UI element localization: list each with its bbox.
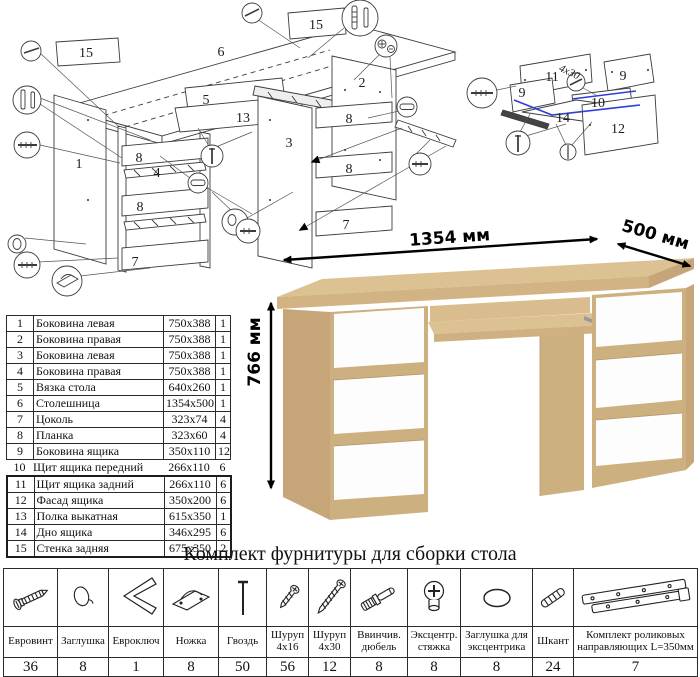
hardware-item-label: Евровинт <box>4 627 58 658</box>
nail-icon <box>223 570 263 626</box>
height-dimension-label: 766 мм <box>245 317 265 386</box>
hardware-label-row: Евровинт Заглушка Евроключ Ножка Гвоздь … <box>4 627 698 658</box>
drawer-slide-icon <box>577 570 695 626</box>
table-row: 9Боковина ящика350x11012 <box>7 444 231 460</box>
hardware-item-label: Заглушка для эксцентрика <box>461 627 533 658</box>
hardware-item-label: Шуруп 4x16 <box>267 627 309 658</box>
table-row: 4Боковина правая750x3881 <box>7 364 231 380</box>
hardware-item-qty: 8 <box>408 658 461 677</box>
desk-render <box>277 258 694 520</box>
part-label: 15 <box>79 46 93 61</box>
table-row: 8Планка323x604 <box>7 428 231 444</box>
hardware-qty-row: 36 8 1 8 50 56 12 8 8 8 24 7 <box>4 658 698 677</box>
cam-cap-icon <box>467 570 527 626</box>
table-row: 12Фасад ящика350x2006 <box>7 493 231 509</box>
table-row: 14Дно ящика346x2956 <box>7 525 231 541</box>
hardware-item-qty: 8 <box>351 658 408 677</box>
hardware-item-label: Эксцентр. стяжка <box>408 627 461 658</box>
hardware-item-qty: 24 <box>533 658 574 677</box>
hardware-item-qty: 8 <box>461 658 533 677</box>
part-label: 9 <box>620 69 627 84</box>
foot-icon <box>167 570 215 626</box>
table-row: 3Боковина левая750x3881 <box>7 348 231 364</box>
part-label: 6 <box>218 45 225 60</box>
table-row: 5Вязка стола640x2601 <box>7 380 231 396</box>
hardware-item-label: Ножка <box>164 627 219 658</box>
part-label: 15 <box>309 18 323 33</box>
part-label: 4 <box>154 166 161 181</box>
hardware-item-qty: 1 <box>109 658 164 677</box>
part-label: 8 <box>137 200 144 215</box>
hardware-item-label: Шкант <box>533 627 574 658</box>
part-label: 10 <box>591 96 605 111</box>
screw-short-icon <box>268 570 308 626</box>
hardware-item-qty: 8 <box>164 658 219 677</box>
parts-table: 1Боковина левая750x3881 2Боковина правая… <box>6 315 232 558</box>
hardware-item-qty: 8 <box>58 658 109 677</box>
part-label: 9 <box>519 86 526 101</box>
hardware-item-label: Гвоздь <box>219 627 267 658</box>
parts-table-upper: 1Боковина левая750x3881 2Боковина правая… <box>6 315 231 460</box>
hardware-item-qty: 50 <box>219 658 267 677</box>
table-row: 7Цоколь323x744 <box>7 412 231 428</box>
hardware-item-label: Евроключ <box>109 627 164 658</box>
part-label: 8 <box>346 162 353 177</box>
part-label: 7 <box>343 218 350 233</box>
part-label: 13 <box>236 111 250 126</box>
wood-dowel-icon <box>533 570 573 626</box>
part-label: 8 <box>346 112 353 127</box>
part-label: 14 <box>556 111 570 126</box>
hardware-item-qty: 56 <box>267 658 309 677</box>
table-row: 13Полка выкатная615x3501 <box>7 509 231 525</box>
hardware-item-label: Ввинчив. дюбель <box>351 627 408 658</box>
part-label: 8 <box>136 151 143 166</box>
hardware-icon-row <box>4 569 698 627</box>
table-row: 10 Щит ящика передний 266x110 6 <box>6 460 230 475</box>
hardware-item-label: Шуруп 4x30 <box>309 627 351 658</box>
part-label: 7 <box>132 255 139 270</box>
hardware-kit-title: Комплект фурнитуры для сборки стола <box>0 543 700 566</box>
table-row: 1Боковина левая750x3881 <box>7 316 231 332</box>
part-label: 3 <box>286 136 293 151</box>
part-label: 5 <box>203 93 210 108</box>
part-label: 1 <box>76 157 83 172</box>
table-row: 2Боковина правая750x3881 <box>7 332 231 348</box>
callout-dowel-pins-icon <box>13 86 41 114</box>
exploded-desk-diagram <box>8 0 456 296</box>
hardware-item-qty: 36 <box>4 658 58 677</box>
cap-icon <box>59 570 107 626</box>
hardware-table: Евровинт Заглушка Евроключ Ножка Гвоздь … <box>3 568 698 677</box>
threaded-dowel-icon <box>352 570 406 626</box>
table-row: 6Столешница1354x5001 <box>7 396 231 412</box>
hardware-item-label: Заглушка <box>58 627 109 658</box>
hex-key-icon <box>112 570 160 626</box>
table-row: 11Щит ящика задний266x1106 <box>7 476 231 493</box>
hardware-item-qty: 7 <box>574 658 698 677</box>
assembly-instruction-page: 15 6 15 2 5 13 3 1 8 4 8 7 8 8 7 11 9 9 … <box>0 0 700 677</box>
hardware-item-label: Комплект роликовых направляющих L=350мм <box>574 627 698 658</box>
part-label: 2 <box>359 76 366 91</box>
screw-long-icon <box>310 570 350 626</box>
cam-lock-icon <box>410 570 458 626</box>
hardware-item-qty: 12 <box>309 658 351 677</box>
callout-dowel-pins-icon <box>342 0 378 36</box>
part-label: 12 <box>611 122 625 137</box>
euro-screw-icon <box>7 570 55 626</box>
